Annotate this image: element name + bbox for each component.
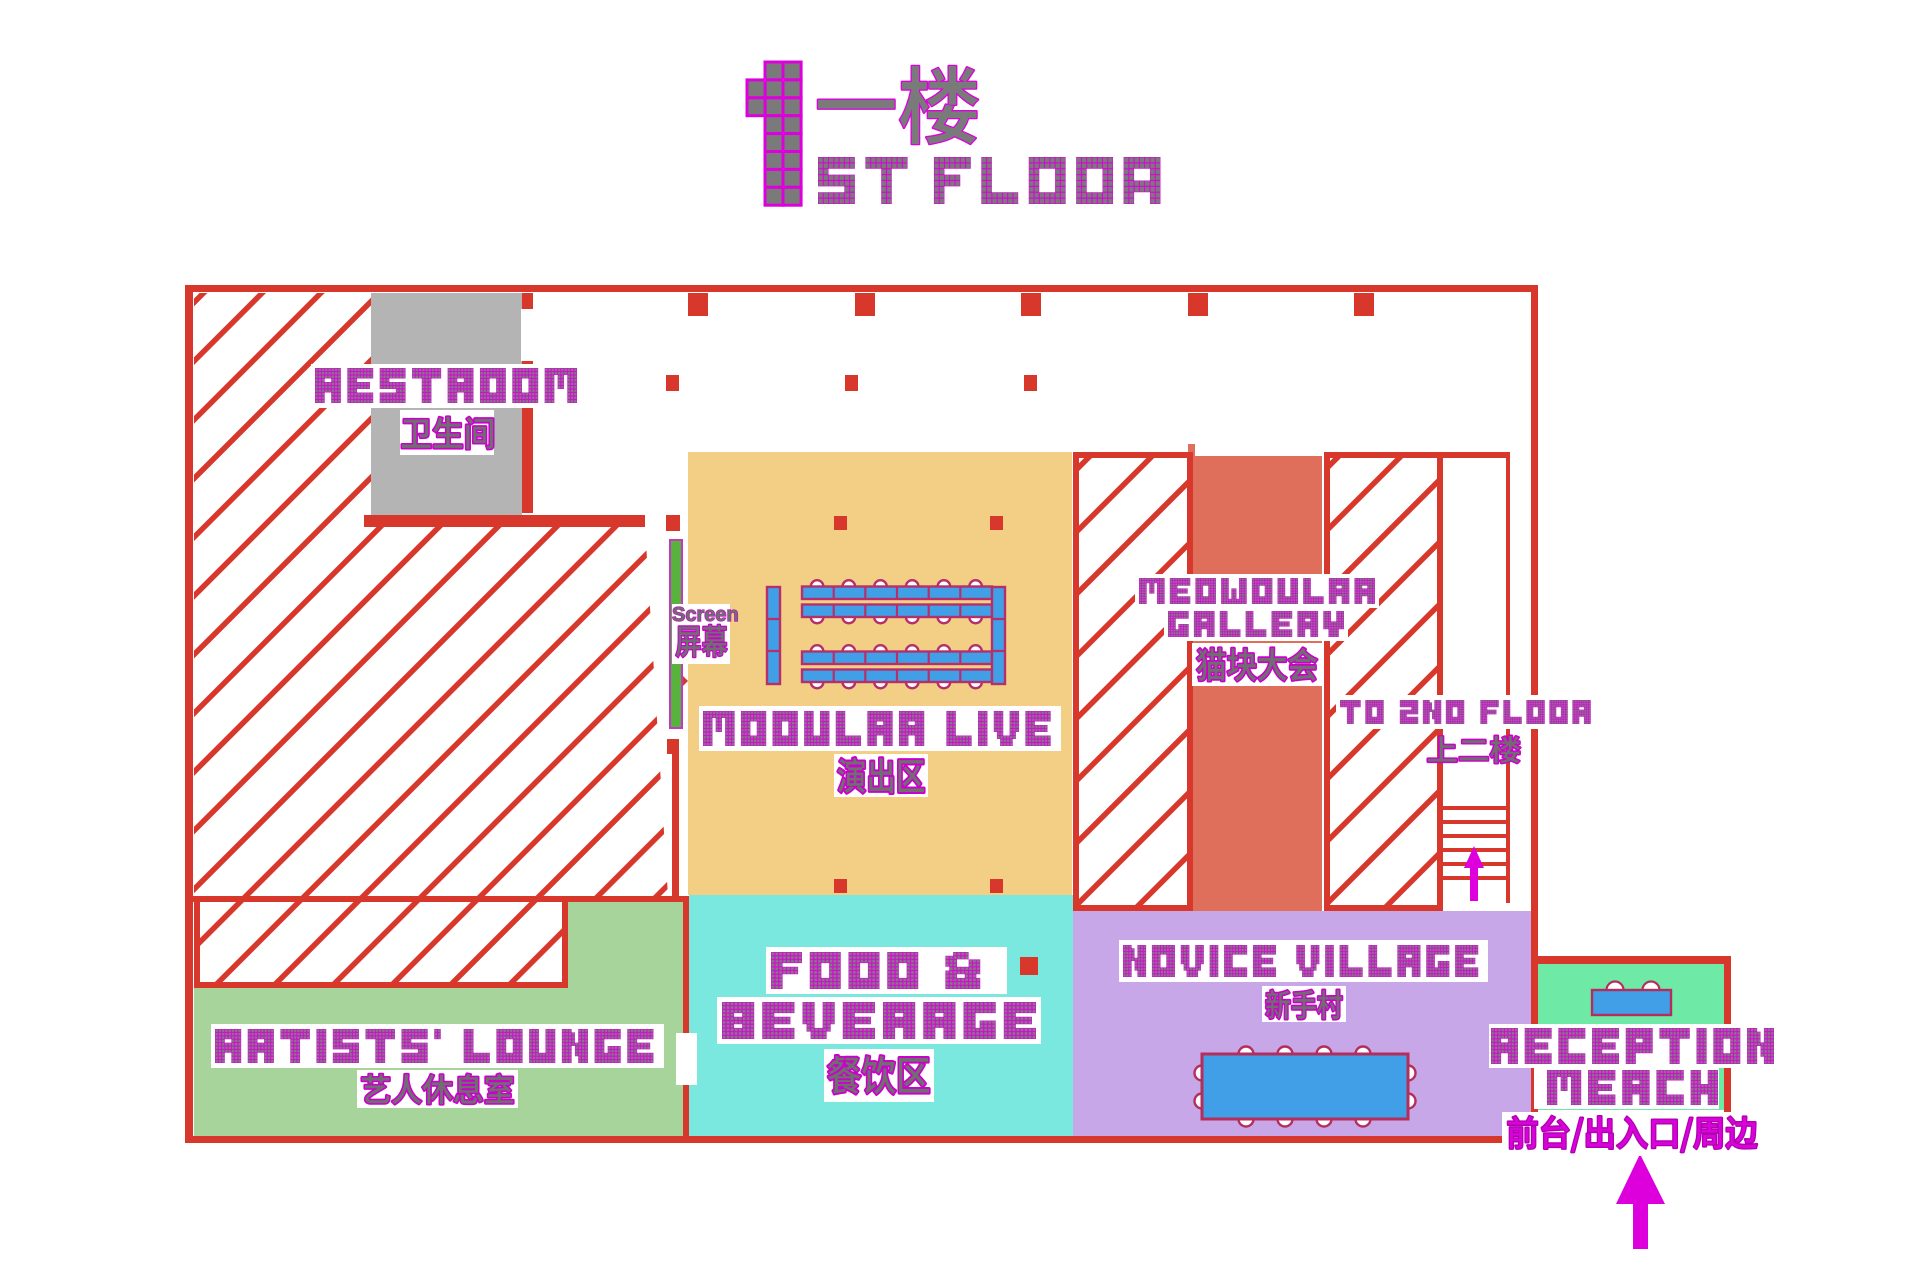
svg-text:Screen: Screen xyxy=(672,604,739,626)
